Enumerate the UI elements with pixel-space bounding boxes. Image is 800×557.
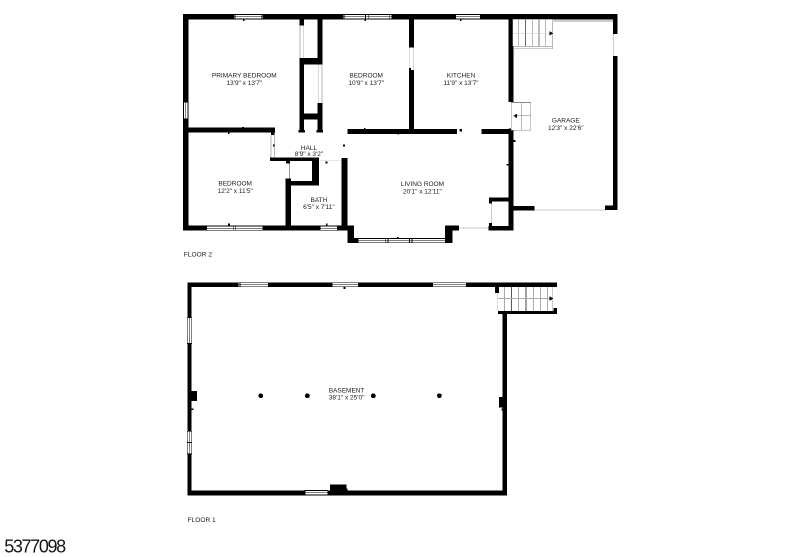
svg-text:5377098: 5377098 — [4, 537, 66, 557]
svg-text:PRIMARY BEDROOM: PRIMARY BEDROOM — [212, 73, 277, 80]
svg-text:12'2" x 11'5": 12'2" x 11'5" — [218, 188, 254, 195]
svg-text:FLOOR 1: FLOOR 1 — [188, 517, 217, 524]
svg-text:38'1" x 25'0": 38'1" x 25'0" — [329, 395, 365, 402]
svg-text:BEDROOM: BEDROOM — [349, 73, 383, 80]
svg-text:8'9" x 3'2": 8'9" x 3'2" — [295, 151, 324, 158]
svg-text:10'9" x 13'7": 10'9" x 13'7" — [348, 80, 384, 87]
svg-text:12'3" x 22'6": 12'3" x 22'6" — [548, 125, 584, 132]
svg-text:BEDROOM: BEDROOM — [218, 180, 252, 187]
svg-text:FLOOR 2: FLOOR 2 — [184, 252, 213, 259]
svg-text:6'5" x 7'11": 6'5" x 7'11" — [303, 204, 335, 211]
svg-text:20'1" x 12'11": 20'1" x 12'11" — [403, 189, 442, 196]
svg-text:11'9" x 13'7": 11'9" x 13'7" — [443, 80, 479, 87]
svg-text:LIVING ROOM: LIVING ROOM — [401, 181, 444, 188]
svg-text:GARAGE: GARAGE — [552, 118, 580, 125]
svg-text:13'9" x 13'7": 13'9" x 13'7" — [226, 80, 262, 87]
svg-text:KITCHEN: KITCHEN — [447, 73, 476, 80]
